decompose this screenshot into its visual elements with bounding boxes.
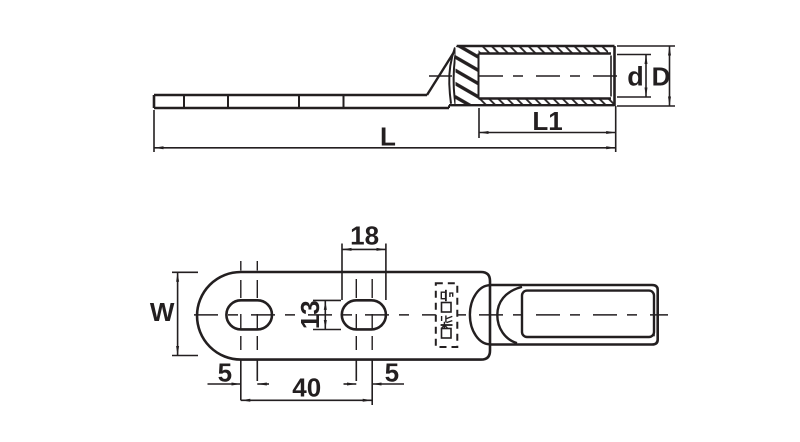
svg-text:L1: L1 <box>532 106 562 136</box>
svg-text:L: L <box>380 121 396 151</box>
svg-text:18: 18 <box>350 221 379 251</box>
svg-text:5: 5 <box>385 357 399 387</box>
svg-text:W: W <box>150 297 175 327</box>
svg-text:d: d <box>627 62 644 92</box>
svg-text:D: D <box>652 62 671 92</box>
svg-text:5: 5 <box>218 357 232 387</box>
svg-text:40: 40 <box>292 372 321 402</box>
svg-text:13: 13 <box>295 300 325 329</box>
